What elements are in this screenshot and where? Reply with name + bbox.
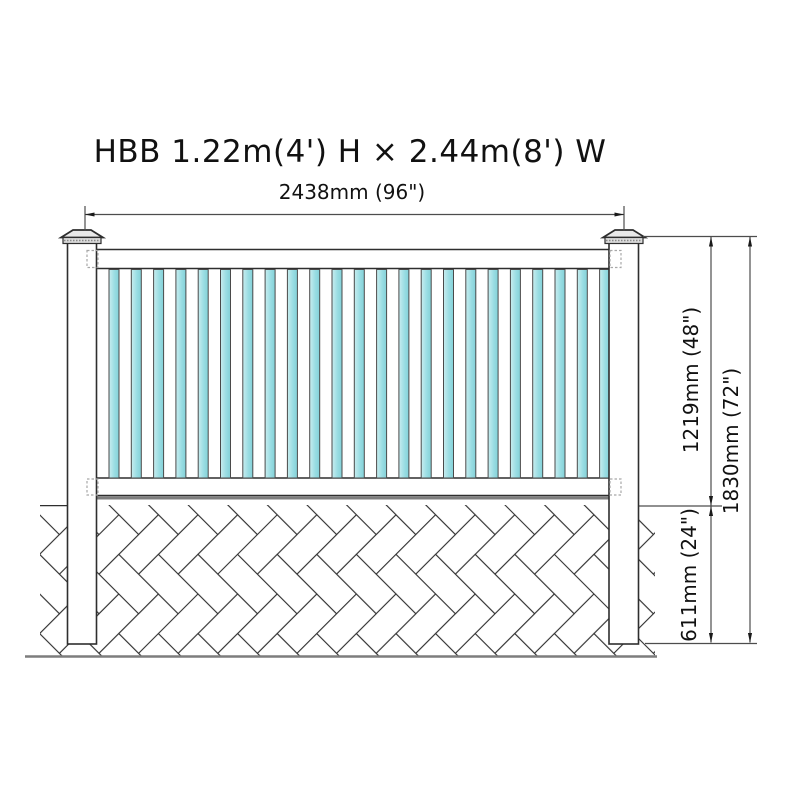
picket-group: [109, 270, 610, 479]
bottom-rail: [87, 478, 621, 496]
diagram-title: HBB 1.22m(4') H × 2.44m(8') W: [0, 134, 700, 170]
picket: [488, 270, 498, 479]
picket: [377, 270, 387, 479]
picket: [198, 270, 208, 479]
picket: [555, 270, 565, 479]
right-post-cap-dome: [603, 230, 645, 238]
picket: [221, 270, 231, 479]
picket: [600, 270, 610, 479]
picket: [109, 270, 119, 479]
picket: [577, 270, 587, 479]
buried-depth-dimension-label: 611mm (24"): [677, 508, 701, 642]
picket: [466, 270, 476, 479]
width-dimension-label: 2438mm (96"): [152, 180, 552, 204]
picket: [444, 270, 454, 479]
picket: [265, 270, 275, 479]
panel-height-dimension-label: 1219mm (48"): [679, 307, 703, 453]
soil-herringbone-hatch: [40, 505, 655, 656]
picket: [176, 270, 186, 479]
picket: [510, 270, 520, 479]
left-post-cap-dome: [61, 230, 103, 238]
picket: [154, 270, 164, 479]
picket: [421, 270, 431, 479]
picket: [131, 270, 141, 479]
picket: [399, 270, 409, 479]
picket: [354, 270, 364, 479]
picket: [310, 270, 320, 479]
fence-dimension-diagram: HBB 1.22m(4') H × 2.44m(8') W 2438mm (96…: [0, 0, 800, 800]
top-rail: [87, 250, 621, 269]
picket: [243, 270, 253, 479]
right-post: [609, 243, 639, 644]
picket: [332, 270, 342, 479]
picket: [533, 270, 543, 479]
picket: [287, 270, 297, 479]
total-height-dimension-label: 1830mm (72"): [719, 368, 743, 514]
left-post: [68, 243, 97, 644]
